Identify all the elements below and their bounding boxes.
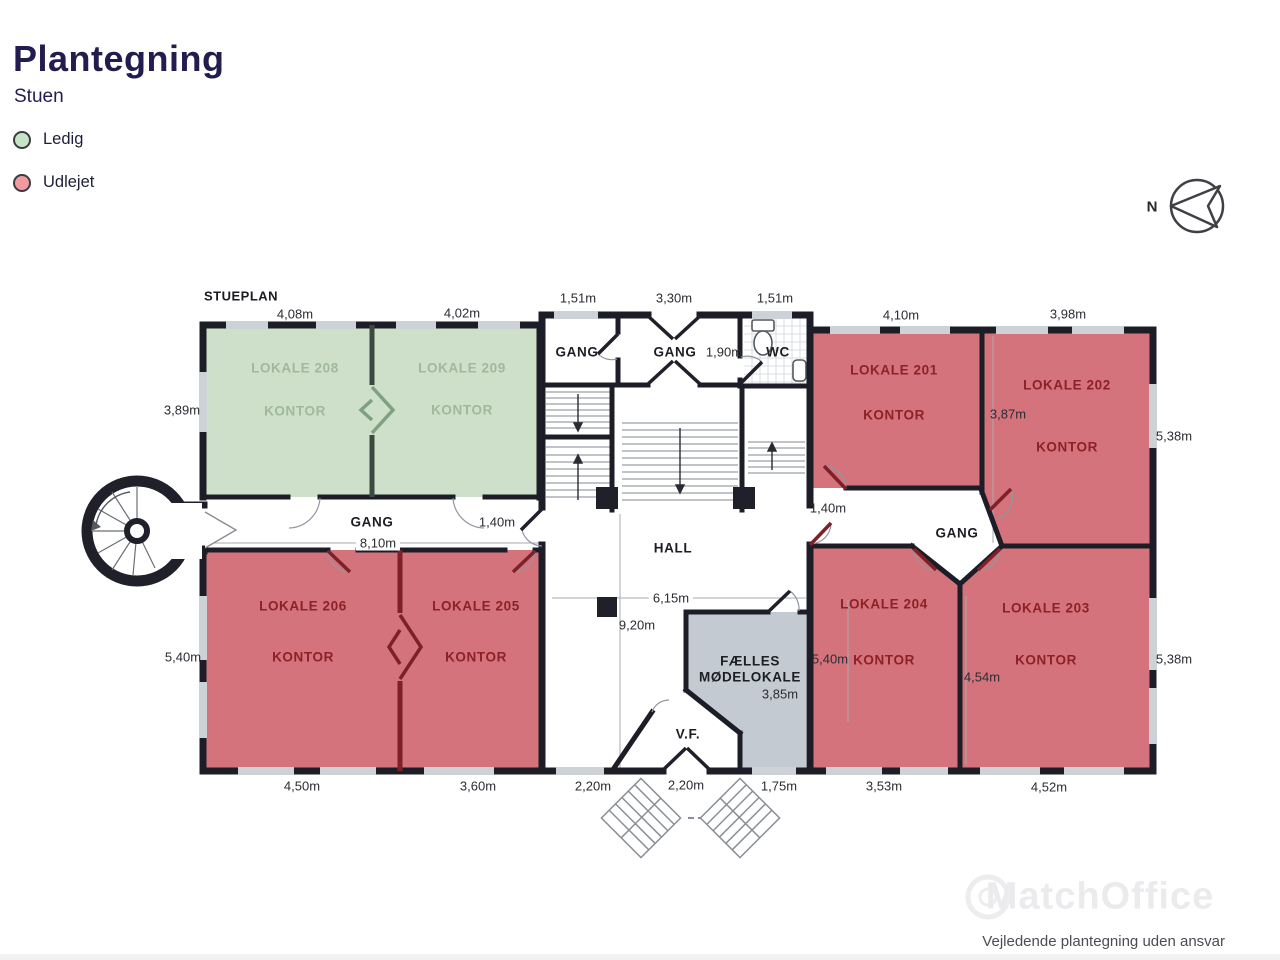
room-label-206: LOKALE 206	[259, 599, 347, 614]
toilet-tank-icon	[752, 320, 774, 331]
room-label-205: LOKALE 205	[432, 599, 520, 614]
room-type-203: KONTOR	[1015, 653, 1077, 668]
room-type-204: KONTOR	[853, 653, 915, 668]
room-label-201: LOKALE 201	[850, 363, 938, 378]
dim-w202: 3,98m	[1050, 307, 1086, 322]
area-gang-top-mid: GANG	[654, 345, 697, 360]
room-type-209: KONTOR	[431, 403, 493, 418]
area-hall: HALL	[654, 541, 692, 556]
room-type-206: KONTOR	[272, 650, 334, 665]
area-wc: WC	[766, 345, 790, 360]
dim-w206: 4,50m	[284, 779, 320, 794]
bottom-strip	[0, 954, 1280, 960]
dim-h204-inner: 5,40m	[812, 652, 848, 667]
dim-w-wc: 1,51m	[757, 291, 793, 306]
sink-icon	[793, 360, 806, 381]
area-gang-top-left: GANG	[556, 345, 599, 360]
dim-hall-bottom: 2,20m	[575, 779, 611, 794]
room-label-204: LOKALE 204	[840, 597, 928, 612]
room-label-202: LOKALE 202	[1023, 378, 1111, 393]
room-shape-202	[982, 330, 1153, 546]
room-type-205: KONTOR	[445, 650, 507, 665]
dim-hall-height: 9,20m	[619, 618, 655, 633]
dim-meeting-bottom: 1,75m	[761, 779, 797, 794]
dim-h203: 5,38m	[1156, 652, 1192, 667]
dim-h208: 3,89m	[164, 403, 200, 418]
dim-vf-width: 2,20m	[668, 778, 704, 793]
dim-gang-door: 1,40m	[479, 515, 515, 530]
dim-w203: 4,52m	[1031, 780, 1067, 795]
interior-stairs	[546, 392, 805, 500]
dim-h206: 5,40m	[165, 650, 201, 665]
dim-gang-length: 8,10m	[356, 536, 400, 551]
dim-w-gang2: 3,30m	[656, 291, 692, 306]
compass-north-label: N	[1147, 199, 1158, 216]
dim-meeting-width: 3,85m	[762, 687, 798, 702]
floor-plan-label: STUEPLAN	[204, 289, 278, 304]
dim-w204: 3,53m	[866, 779, 902, 794]
dim-h202: 5,38m	[1156, 429, 1192, 444]
dim-w208: 4,08m	[277, 307, 313, 322]
dim-w205: 3,60m	[460, 779, 496, 794]
room-type-201: KONTOR	[863, 408, 925, 423]
watermark-text: MatchOffice	[986, 876, 1214, 919]
dim-w209: 4,02m	[444, 306, 480, 321]
compass-icon	[1171, 180, 1223, 232]
floorplan-page: Plantegning Stuen Ledig Udlejet	[0, 0, 1280, 960]
dim-w-gang1: 1,51m	[560, 291, 596, 306]
dim-gang-east-door: 1,40m	[810, 501, 846, 516]
room-type-202: KONTOR	[1036, 440, 1098, 455]
floorplan-drawing	[0, 0, 1280, 960]
dim-w201: 4,10m	[883, 308, 919, 323]
dim-h202-inner: 3,87m	[990, 407, 1026, 422]
area-vf: V.F.	[676, 727, 700, 742]
room-label-203: LOKALE 203	[1002, 601, 1090, 616]
room-label-209: LOKALE 209	[418, 361, 506, 376]
disclaimer-text: Vejledende plantegning uden ansvar	[982, 933, 1225, 950]
dim-wc-inner: 1,90m	[706, 345, 742, 360]
area-gang-west: GANG	[351, 515, 394, 530]
area-meeting-line2: MØDELOKALE	[699, 670, 801, 685]
area-meeting-line1: FÆLLES	[720, 654, 780, 669]
room-label-208: LOKALE 208	[251, 361, 339, 376]
area-gang-east: GANG	[936, 526, 979, 541]
dim-hall-width: 6,15m	[649, 591, 693, 606]
room-type-208: KONTOR	[264, 404, 326, 419]
dim-h203-inner: 4,54m	[964, 670, 1000, 685]
